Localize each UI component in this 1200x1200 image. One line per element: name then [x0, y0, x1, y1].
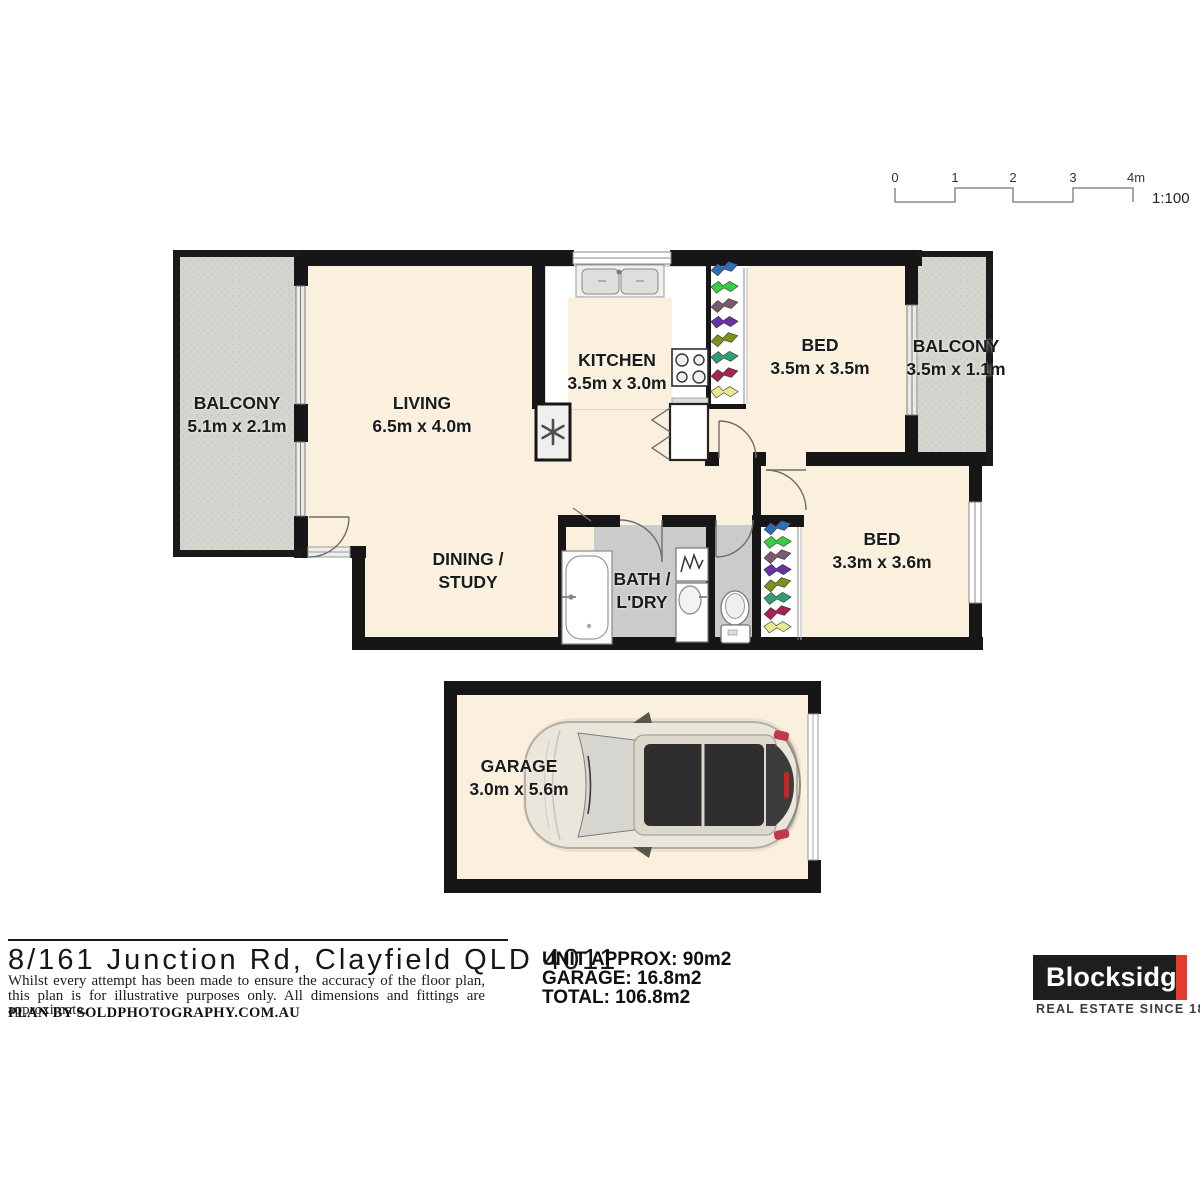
toilet-icon — [721, 591, 750, 643]
area-unit: UNIT APPROX: 90m2 — [542, 951, 731, 970]
plan-credit: PLAN BY SOLDPHOTOGRAPHY.COM.AU — [8, 1005, 300, 1022]
washing-machine-icon — [676, 548, 708, 581]
room-label-balcony-left: BALCONY 5.1m x 2.1m — [187, 392, 286, 438]
scale-tick-2: 2 — [1009, 170, 1016, 185]
basin-icon — [676, 583, 708, 642]
scale-ratio: 1:100 — [1152, 190, 1190, 207]
blocksidge-logo: Blocksidge — [1033, 955, 1187, 1000]
brand-name: Blocksidge — [1033, 962, 1192, 993]
scale-tick-1: 1 — [951, 170, 958, 185]
room-label-living: LIVING 6.5m x 4.0m — [372, 392, 471, 438]
room-label-bed2: BED 3.3m x 3.6m — [832, 528, 931, 574]
floorplan-page: 0 1 2 3 4m 1:100 BALCONY 5.1m x 2.1m LIV… — [0, 0, 1200, 1200]
bath-niche — [566, 527, 594, 551]
brand-accent-bar — [1176, 955, 1187, 1000]
room-label-bath: BATH / L'DRY — [613, 568, 670, 614]
room-label-balcony-right: BALCONY 3.5m x 1.1m — [906, 335, 1005, 381]
room-label-kitchen: KITCHEN 3.5m x 3.0m — [567, 349, 666, 395]
bathtub-icon — [562, 551, 612, 644]
brand-tagline: REAL ESTATE SINCE 1888 — [1036, 1002, 1200, 1016]
scale-bar-line — [895, 188, 1133, 202]
scale-tick-4: 4m — [1127, 170, 1145, 185]
kitchen-sink-icon — [576, 265, 664, 297]
room-label-dining: DINING / STUDY — [433, 548, 504, 594]
scale-tick-0: 0 — [891, 170, 898, 185]
divider-rule — [8, 939, 508, 941]
room-label-garage: GARAGE 3.0m x 5.6m — [469, 755, 568, 801]
area-garage: GARAGE: 16.8m2 — [542, 970, 731, 989]
area-summary: UNIT APPROX: 90m2 GARAGE: 16.8m2 TOTAL: … — [542, 951, 731, 1007]
hot-water-unit-icon — [536, 404, 570, 460]
area-total: TOTAL: 106.8m2 — [542, 989, 731, 1008]
room-label-bed1: BED 3.5m x 3.5m — [770, 334, 869, 380]
scale-tick-3: 3 — [1069, 170, 1076, 185]
